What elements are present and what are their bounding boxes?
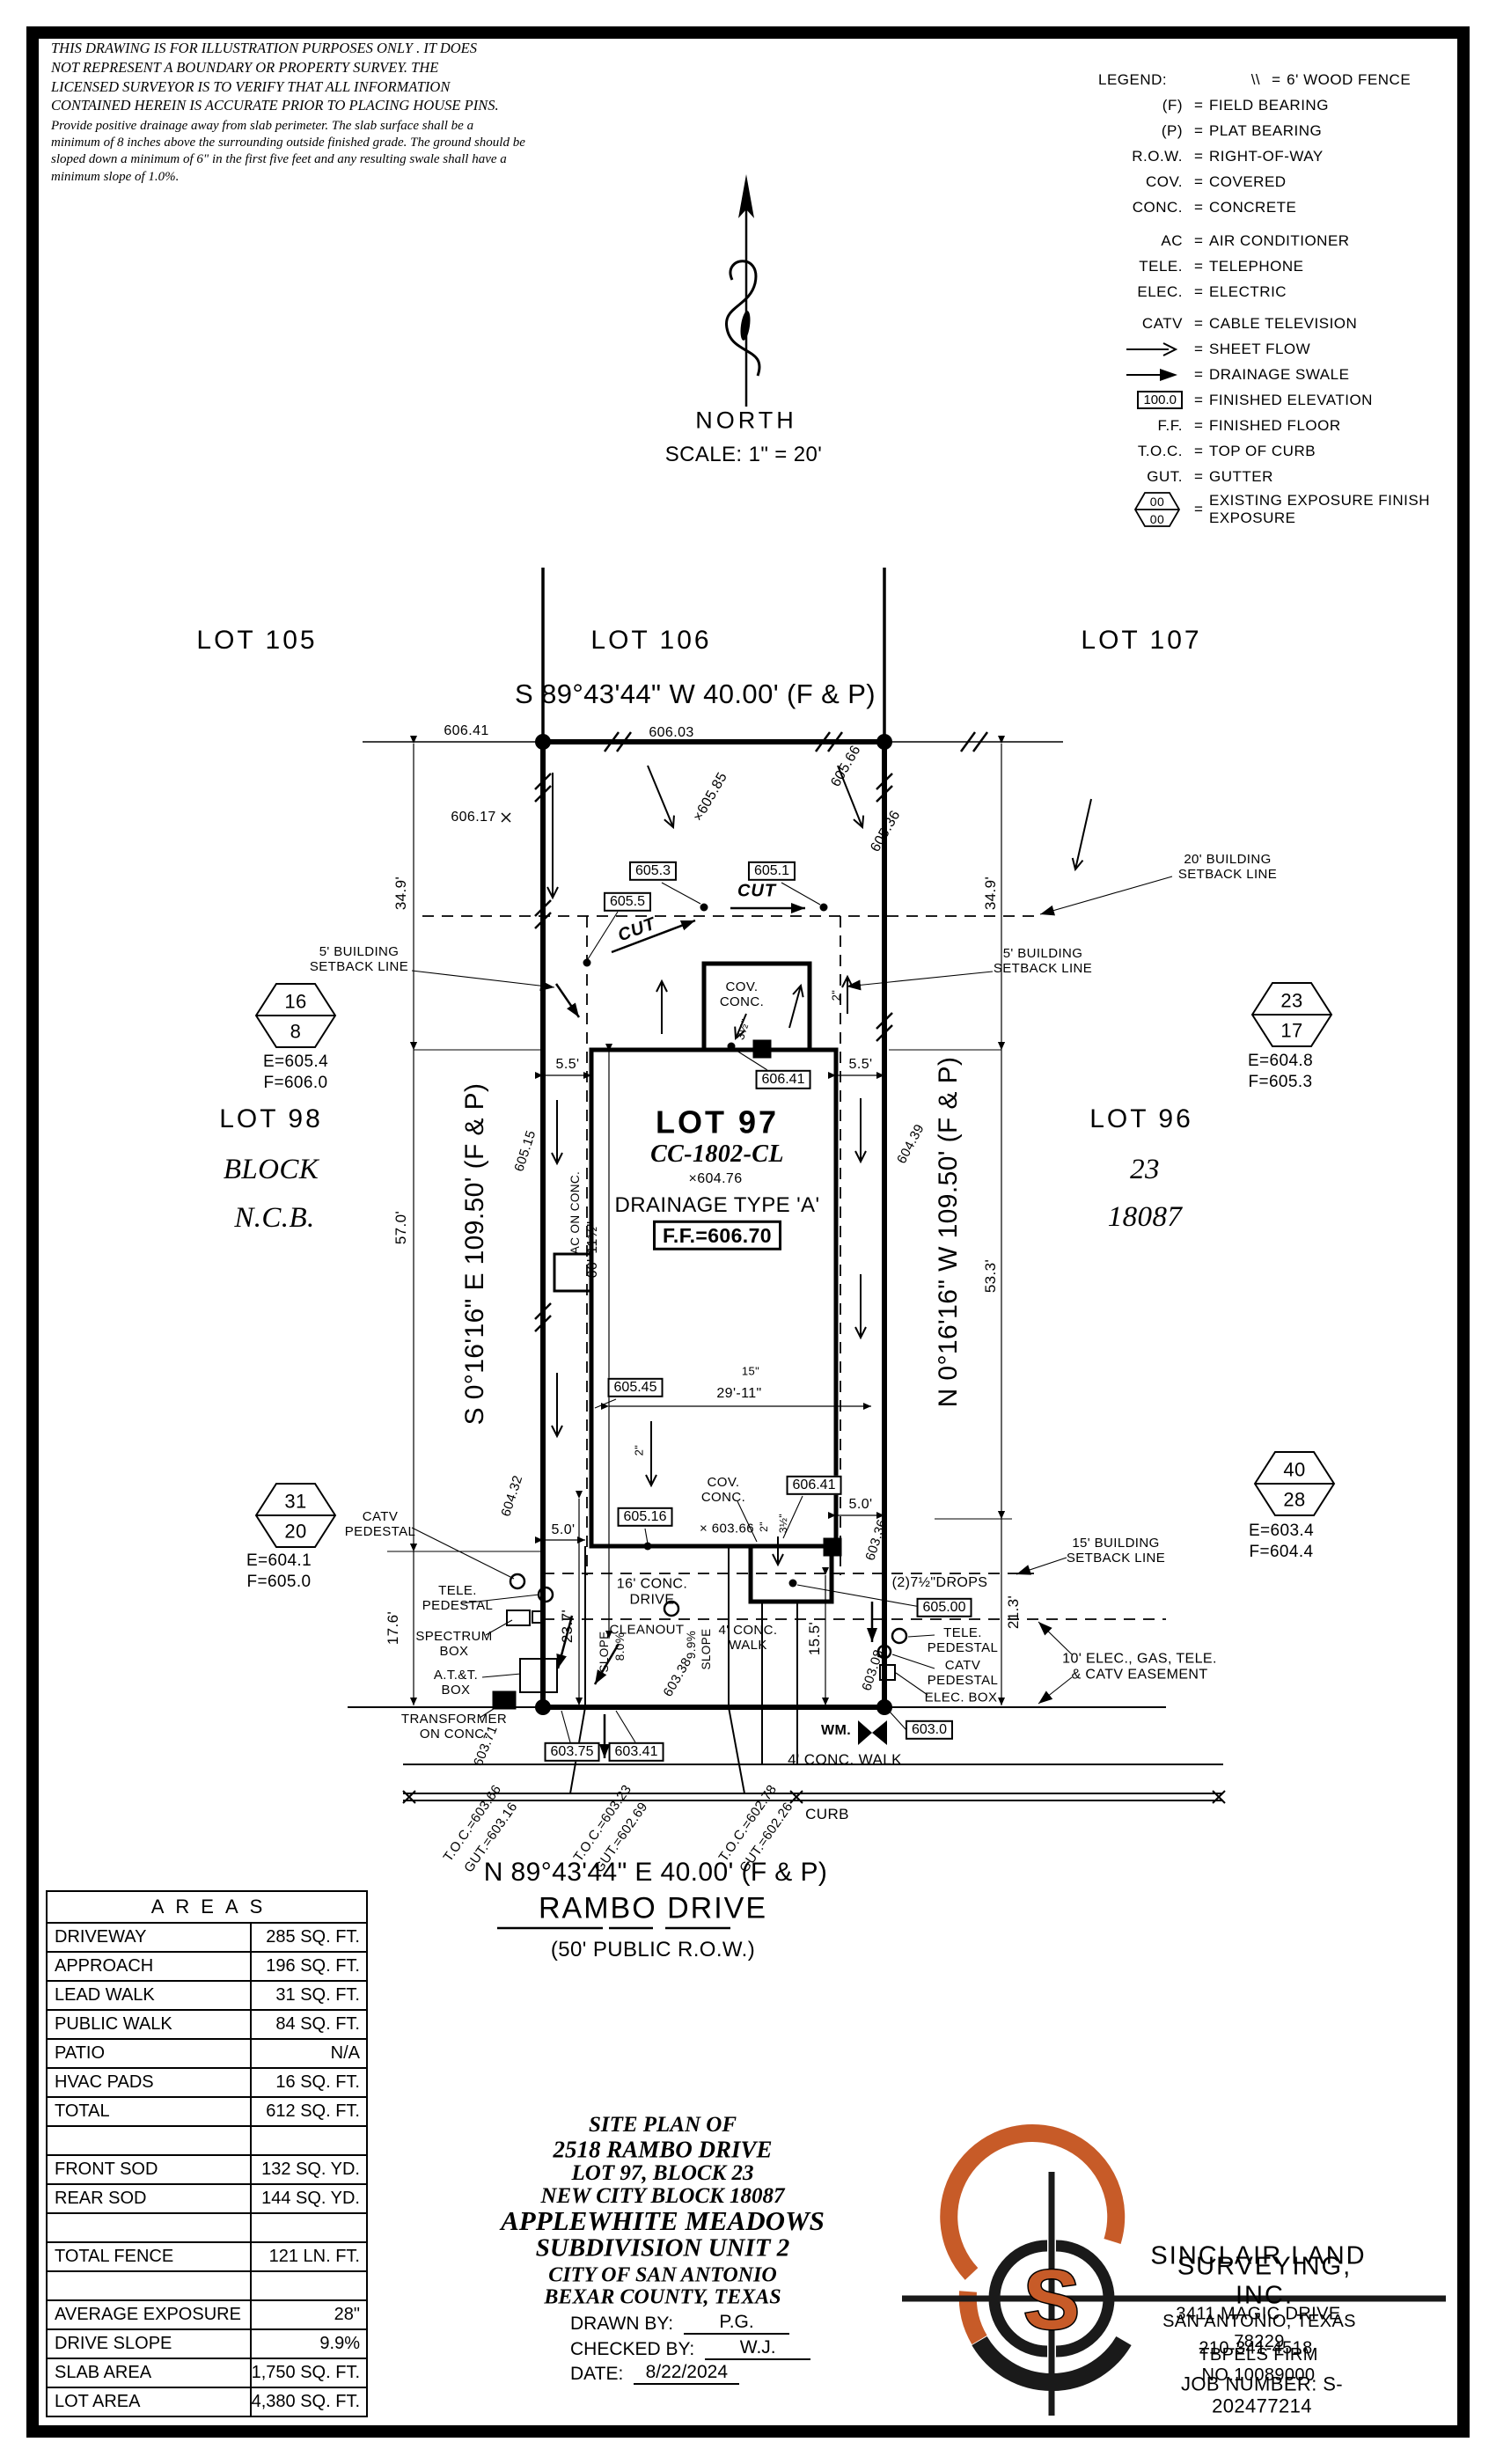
- legend-desc: FINISHED FLOOR: [1209, 417, 1459, 435]
- row-value: 4,380 SQ. FT.: [252, 2388, 366, 2416]
- finished-floor-value: F.F.=606.70: [653, 1221, 781, 1250]
- row-label: HVAC PADS: [48, 2069, 252, 2096]
- boxed-elev-605-3: 605.3: [629, 862, 677, 881]
- legend-desc: TOP OF CURB: [1209, 443, 1459, 460]
- boxed-elev-605-5: 605.5: [604, 892, 651, 912]
- leader-lines: [412, 876, 1172, 1742]
- table-row-slab-area: SLAB AREA1,750 SQ. FT.: [48, 2358, 366, 2387]
- equals: =: [1188, 443, 1209, 460]
- legend-row-row: R.O.W.=RIGHT-OF-WAY: [1098, 143, 1459, 169]
- setback-5-right-label: 5' BUILDING SETBACK LINE: [994, 946, 1092, 977]
- legend-row-ac: AC=AIR CONDITIONER: [1098, 228, 1459, 253]
- disclaimer-note-2: Provide positive drainage away from slab…: [51, 118, 544, 186]
- callout-1-e: E=605.4: [263, 1052, 328, 1072]
- toc-abbrev: T.O.C.: [1098, 443, 1188, 460]
- title-line-6: SUBDIVISION UNIT 2: [536, 2234, 789, 2263]
- public-walk-label: 4' CONC. WALK: [788, 1751, 902, 1769]
- catv-pedestal-right-label: CATV PEDESTAL: [928, 1658, 998, 1689]
- house-spot-elevation: ×604.76: [688, 1171, 742, 1187]
- legend-desc: FINISHED ELEVATION: [1209, 392, 1459, 409]
- row-label: REAR SOD: [48, 2185, 252, 2212]
- hexagon-callouts: [256, 983, 1334, 1547]
- table-row-lead-walk: LEAD WALK31 SQ. FT.: [48, 1980, 366, 2009]
- slope-left-value: 8.0%: [613, 1632, 627, 1661]
- catv-abbrev: CATV: [1098, 315, 1188, 333]
- exposure-2in-patio: 2": [831, 990, 844, 1001]
- checked-by-label: CHECKED BY:: [570, 2339, 694, 2360]
- drawn-by-label: DRAWN BY:: [570, 2314, 673, 2335]
- title-line-8: BEXAR COUNTY, TEXAS: [544, 2286, 781, 2310]
- spot-606-41: 606.41: [444, 723, 488, 739]
- spot-603-66: × 603.66: [700, 1521, 754, 1536]
- legend-row-catv: CATV=CABLE TELEVISION: [1098, 311, 1459, 336]
- boxed-elev-603-41: 603.41: [609, 1742, 664, 1762]
- block-word: BLOCK: [224, 1154, 319, 1187]
- row-label: AVERAGE EXPOSURE: [48, 2301, 252, 2328]
- row-value: 28": [252, 2301, 366, 2328]
- boxed-elev-605-45: 605.45: [608, 1378, 664, 1397]
- legend-row-covered: COV.=COVERED: [1098, 169, 1459, 194]
- legend-row-plat-bearing: (P)=PLAT BEARING: [1098, 118, 1459, 143]
- elec-box-label: ELEC. BOX: [925, 1690, 998, 1705]
- callout-4-finish: 28: [1283, 1488, 1305, 1510]
- dim-5-0-left: 5.0': [552, 1522, 576, 1538]
- slope-right-value: 9.9%: [685, 1631, 699, 1659]
- callout-1-f: F=606.0: [263, 1074, 327, 1093]
- ac-on-conc-label: AC ON CONC.: [568, 1171, 583, 1254]
- callout-4-e: E=603.4: [1249, 1522, 1314, 1541]
- legend-desc: FIELD BEARING: [1209, 97, 1459, 114]
- legend-row-telephone: TELE.=TELEPHONE: [1098, 253, 1459, 279]
- legend-desc: EXISTING EXPOSURE FINISH EXPOSURE: [1209, 492, 1459, 527]
- row-label: LEAD WALK: [48, 1982, 252, 2009]
- dim-21-3: 21.3': [1005, 1595, 1023, 1629]
- row-value: [252, 2127, 366, 2154]
- easement-label: 10' ELEC., GAS, TELE. & CATV EASEMENT: [1062, 1652, 1217, 1684]
- exposure-3-5in-front: 3½": [778, 1514, 790, 1533]
- setback-15-label: 15' BUILDING SETBACK LINE: [1067, 1536, 1165, 1566]
- house-plan-label: CC-1802-CL: [650, 1140, 784, 1169]
- slope-left-word: SLOPE: [598, 1631, 612, 1672]
- house-outline: [554, 964, 840, 1602]
- svg-text:00: 00: [1150, 495, 1165, 509]
- block-23-label: 23: [1130, 1154, 1160, 1187]
- table-row-patio: PATION/A: [48, 2038, 366, 2067]
- firm-name-2: SURVEYING, INC.: [1149, 2253, 1381, 2312]
- row-value: N/A: [252, 2040, 366, 2067]
- boxed-elev-605-16: 605.16: [618, 1507, 673, 1527]
- table-row-empty: [48, 2125, 366, 2154]
- street-name: RAMBO DRIVE: [539, 1891, 767, 1925]
- boxed-elev-606-41-rear: 606.41: [756, 1070, 811, 1089]
- table-row-public-walk: PUBLIC WALK84 SQ. FT.: [48, 2009, 366, 2038]
- lot-96-label: LOT 96: [1089, 1104, 1193, 1135]
- spot-606-17: 606.17: [451, 810, 495, 825]
- title-line-7: CITY OF SAN ANTONIO: [548, 2264, 776, 2288]
- cut-label-2: CUT: [737, 882, 776, 902]
- catv-pedestal-left-label: CATV PEDESTAL: [345, 1509, 415, 1540]
- north-label: NORTH: [695, 407, 797, 434]
- row-value: 1,750 SQ. FT.: [252, 2359, 366, 2387]
- row-label: SLAB AREA: [48, 2359, 252, 2387]
- legend-row-sheet-flow: =SHEET FLOW: [1098, 336, 1459, 362]
- callout-3-f: F=605.0: [246, 1573, 311, 1592]
- ncb-18087-label: 18087: [1108, 1201, 1183, 1235]
- equals: =: [1188, 417, 1209, 435]
- dim-5-0-right: 5.0': [849, 1497, 873, 1513]
- exposure-hexagon-icon: 0000: [1132, 489, 1183, 530]
- callout-1-existing: 16: [284, 990, 306, 1012]
- street-row-label: (50' PUBLIC R.O.W.): [551, 1938, 755, 1962]
- equals: =: [1188, 173, 1209, 191]
- finished-elevation-symbol: 100.0: [1137, 391, 1183, 409]
- legend-row-gutter: GUT.=GUTTER: [1098, 464, 1459, 489]
- legend-desc: CONCRETE: [1209, 199, 1459, 216]
- legend-desc: 6' WOOD FENCE: [1287, 71, 1459, 89]
- att-box-label: A.T.&T. BOX: [434, 1668, 478, 1698]
- row-value: 132 SQ. YD.: [252, 2156, 366, 2183]
- tele-abbrev: TELE.: [1098, 258, 1188, 275]
- legend-row-drainage-swale: =DRAINAGE SWALE: [1098, 362, 1459, 387]
- table-row-lot-area: LOT AREA4,380 SQ. FT.: [48, 2387, 366, 2416]
- dim-17-6: 17.6': [385, 1611, 402, 1645]
- legend-row-toc: T.O.C.=TOP OF CURB: [1098, 438, 1459, 464]
- legend-row-exposure: 0000=EXISTING EXPOSURE FINISH EXPOSURE: [1098, 489, 1459, 530]
- title-line-1: SITE PLAN OF: [589, 2113, 737, 2138]
- site-plan-sheet: S THIS DRAWING IS FOR ILLUSTRATION PURPO…: [0, 0, 1496, 2464]
- covered-concrete-front: COV. CONC.: [701, 1475, 745, 1506]
- legend-row-field-bearing: (F)=FIELD BEARING: [1098, 92, 1459, 118]
- row-abbrev: R.O.W.: [1098, 148, 1188, 165]
- curb-label: CURB: [805, 1806, 849, 1823]
- date-row: DATE:8/22/2024: [570, 2362, 739, 2385]
- exposure-2in-front: 2": [634, 1445, 647, 1456]
- spot-606-03: 606.03: [649, 725, 693, 741]
- checked-by-row: CHECKED BY:W.J.: [570, 2337, 810, 2360]
- equals: =: [1188, 258, 1209, 275]
- drainage-swale-icon: [1125, 367, 1183, 383]
- callout-4-f: F=604.4: [1249, 1543, 1313, 1562]
- plat-bearing-symbol: (P): [1098, 122, 1188, 140]
- legend-row-finished-elevation: 100.0=FINISHED ELEVATION: [1098, 387, 1459, 413]
- ac-abbrev: AC: [1098, 232, 1188, 250]
- tele-pedestal-left-label: TELE. PEDESTAL: [422, 1583, 493, 1614]
- row-value: 612 SQ. FT.: [252, 2098, 366, 2125]
- legend-title: LEGEND:: [1098, 71, 1167, 89]
- dim-5-5-left: 5.5': [556, 1057, 580, 1073]
- tele-pedestal-right-label: TELE. PEDESTAL: [928, 1625, 998, 1656]
- legend-desc: PLAT BEARING: [1209, 122, 1459, 140]
- callout-3-finish: 20: [284, 1520, 306, 1542]
- dim-53-3: 53.3': [982, 1259, 1000, 1293]
- north-arrow-icon: [726, 174, 759, 407]
- row-label: LOT AREA: [48, 2388, 252, 2416]
- ff-abbrev: F.F.: [1098, 417, 1188, 435]
- equals: =: [1188, 501, 1209, 518]
- equals: =: [1188, 232, 1209, 250]
- slope-right-word: SLOPE: [700, 1628, 714, 1669]
- areas-table: AREAS DRIVEWAY285 SQ. FT. APPROACH196 SQ…: [46, 1890, 368, 2417]
- row-value: [252, 2214, 366, 2241]
- equals: =: [1188, 148, 1209, 165]
- callout-2-finish: 17: [1280, 1019, 1302, 1041]
- legend-desc: RIGHT-OF-WAY: [1209, 148, 1459, 165]
- lot-98-label: LOT 98: [219, 1104, 323, 1135]
- callout-2-f: F=605.3: [1248, 1073, 1312, 1092]
- callout-3-existing: 31: [284, 1490, 306, 1512]
- logo-letter: S: [1023, 2253, 1080, 2347]
- drops-label: (2)7½"DROPS: [892, 1575, 988, 1591]
- legend-desc: ELECTRIC: [1209, 283, 1459, 301]
- disclaimer-note-1: THIS DRAWING IS FOR ILLUSTRATION PURPOSE…: [51, 39, 544, 115]
- row-label: PATIO: [48, 2040, 252, 2067]
- equals: =: [1188, 468, 1209, 486]
- row-value: 285 SQ. FT.: [252, 1924, 366, 1951]
- legend-desc: COVERED: [1209, 173, 1459, 191]
- legend: LEGEND:\\=6' WOOD FENCE (F)=FIELD BEARIN…: [1098, 67, 1459, 530]
- row-value: 84 SQ. FT.: [252, 2011, 366, 2038]
- equals: =: [1188, 341, 1209, 358]
- bearing-right: N 0°16'16" W 109.50' (F & P): [934, 1057, 964, 1408]
- callout-2-e: E=604.8: [1248, 1052, 1313, 1071]
- row-value: 31 SQ. FT.: [252, 1982, 366, 2009]
- setback-20-label: 20' BUILDING SETBACK LINE: [1178, 852, 1277, 883]
- equals: =: [1188, 97, 1209, 114]
- spectrum-box-label: SPECTRUM BOX: [415, 1629, 492, 1660]
- row-label: FRONT SOD: [48, 2156, 252, 2183]
- equals: =: [1265, 71, 1287, 89]
- sheet-flow-icon: [1125, 341, 1183, 357]
- drawn-by-row: DRAWN BY:P.G.: [570, 2312, 789, 2335]
- row-label: TOTAL FENCE: [48, 2243, 252, 2270]
- table-row-total-fence: TOTAL FENCE121 LN. FT.: [48, 2241, 366, 2270]
- drive-label: 16' CONC. DRIVE: [617, 1577, 687, 1610]
- ncb-word: N.C.B.: [234, 1202, 314, 1236]
- boxed-elev-603-0: 603.0: [906, 1720, 953, 1740]
- equals: =: [1188, 122, 1209, 140]
- table-row-empty: [48, 2212, 366, 2241]
- scale-label: SCALE: 1" = 20': [665, 443, 823, 467]
- row-label: TOTAL: [48, 2098, 252, 2125]
- row-label: [48, 2127, 252, 2154]
- dim-5-5-right: 5.5': [849, 1057, 873, 1073]
- row-value: 144 SQ. YD.: [252, 2185, 366, 2212]
- boxed-elev-605-00: 605.00: [917, 1598, 972, 1617]
- legend-row-finished-floor: F.F.=FINISHED FLOOR: [1098, 413, 1459, 438]
- bearing-top: S 89°43'44" W 40.00' (F & P): [515, 678, 876, 710]
- transformer-label: TRANSFORMER ON CONC.: [401, 1712, 507, 1742]
- table-row-approach: APPROACH196 SQ. FT.: [48, 1951, 366, 1980]
- equals: =: [1188, 199, 1209, 216]
- callout-2-existing: 23: [1280, 989, 1302, 1011]
- row-label: DRIVEWAY: [48, 1924, 252, 1951]
- table-row-drive-slope: DRIVE SLOPE9.9%: [48, 2328, 366, 2358]
- exposure-2in-walk: 2": [759, 1522, 771, 1532]
- bearing-bottom: N 89°43'44" E 40.00' (F & P): [484, 1858, 828, 1888]
- title-line-5: APPLEWHITE MEADOWS: [501, 2205, 825, 2237]
- legend-row-wood-fence: LEGEND:\\=6' WOOD FENCE: [1098, 67, 1459, 92]
- cov-abbrev: COV.: [1098, 173, 1188, 191]
- water-meter-label: WM.: [821, 1723, 851, 1739]
- legend-desc: GUTTER: [1209, 468, 1459, 486]
- svg-text:00: 00: [1150, 512, 1165, 526]
- lot-105-label: LOT 105: [196, 626, 317, 656]
- dim-57-0: 57.0': [392, 1211, 410, 1244]
- row-label: PUBLIC WALK: [48, 2011, 252, 2038]
- callout-1-finish: 8: [290, 1020, 302, 1042]
- legend-desc: DRAINAGE SWALE: [1209, 366, 1459, 384]
- legend-desc: CABLE TELEVISION: [1209, 315, 1459, 333]
- legend-desc: TELEPHONE: [1209, 258, 1459, 275]
- row-value: 16 SQ. FT.: [252, 2069, 366, 2096]
- row-value: 9.9%: [252, 2330, 366, 2358]
- table-row-hvac-pads: HVAC PADS16 SQ. FT.: [48, 2067, 366, 2096]
- covered-concrete-rear: COV. CONC.: [720, 979, 764, 1010]
- legend-row-electric: ELEC.=ELECTRIC: [1098, 279, 1459, 304]
- setback-5-left-label: 5' BUILDING SETBACK LINE: [310, 944, 408, 975]
- row-label: APPROACH: [48, 1953, 252, 1980]
- date-label: DATE:: [570, 2364, 623, 2385]
- row-value: 121 LN. FT.: [252, 2243, 366, 2270]
- title-line-3: LOT 97, BLOCK 23: [572, 2161, 754, 2186]
- dim-23-7: 23.7': [559, 1610, 576, 1643]
- boxed-elev-605-1: 605.1: [748, 862, 796, 881]
- checked-by-value: W.J.: [705, 2337, 810, 2360]
- table-row-average-exposure: AVERAGE EXPOSURE28": [48, 2299, 366, 2328]
- title-line-2: 2518 RAMBO DRIVE: [553, 2137, 772, 2164]
- boxed-elev-603-75: 603.75: [545, 1742, 600, 1762]
- dim-29-11: 29'-11": [716, 1386, 761, 1402]
- row-label: [48, 2214, 252, 2241]
- wood-fence-symbol: \\: [1176, 71, 1265, 89]
- legend-row-concrete: CONC.=CONCRETE: [1098, 194, 1459, 220]
- callout-3-e: E=604.1: [246, 1551, 312, 1571]
- legend-desc: SHEET FLOW: [1209, 341, 1459, 358]
- table-row-front-sod: FRONT SOD132 SQ. YD.: [48, 2154, 366, 2183]
- date-value: 8/22/2024: [634, 2362, 739, 2385]
- gut-abbrev: GUT.: [1098, 468, 1188, 486]
- equals: =: [1188, 392, 1209, 409]
- legend-desc: AIR CONDITIONER: [1209, 232, 1459, 250]
- job-number: JOB NUMBER: S-202477214: [1145, 2373, 1379, 2418]
- house-lot-label: LOT 97: [656, 1104, 779, 1140]
- row-value: [252, 2272, 366, 2299]
- dim-66-11: 66'-11½": [585, 1221, 601, 1278]
- equals: =: [1188, 366, 1209, 384]
- dim-15-inch: 15": [742, 1366, 759, 1379]
- areas-table-title: AREAS: [48, 1892, 366, 1922]
- field-bearing-symbol: (F): [1098, 97, 1188, 114]
- lot-107-label: LOT 107: [1081, 626, 1201, 656]
- elec-abbrev: ELEC.: [1098, 283, 1188, 301]
- lead-walk-label: 4' CONC. WALK: [719, 1623, 778, 1654]
- conc-abbrev: CONC.: [1098, 199, 1188, 216]
- table-row-empty: [48, 2270, 366, 2299]
- drawn-by-value: P.G.: [684, 2312, 789, 2335]
- table-row-total: TOTAL612 SQ. FT.: [48, 2096, 366, 2125]
- boxed-elev-606-41-front: 606.41: [787, 1476, 842, 1495]
- dim-34-9-left: 34.9': [392, 876, 410, 910]
- dim-15-5: 15.5': [806, 1622, 824, 1655]
- table-row-rear-sod: REAR SOD144 SQ. YD.: [48, 2183, 366, 2212]
- lot-106-label: LOT 106: [590, 626, 711, 656]
- equals: =: [1188, 283, 1209, 301]
- dim-34-9-right: 34.9': [982, 876, 1000, 910]
- bearing-left: S 0°16'16" E 109.50' (F & P): [460, 1083, 491, 1426]
- row-label: [48, 2272, 252, 2299]
- row-value: 196 SQ. FT.: [252, 1953, 366, 1980]
- callout-4-existing: 40: [1283, 1458, 1305, 1480]
- equals: =: [1188, 315, 1209, 333]
- drainage-type-label: DRAINAGE TYPE 'A': [615, 1193, 820, 1218]
- row-label: DRIVE SLOPE: [48, 2330, 252, 2358]
- table-row-driveway: DRIVEWAY285 SQ. FT.: [48, 1922, 366, 1951]
